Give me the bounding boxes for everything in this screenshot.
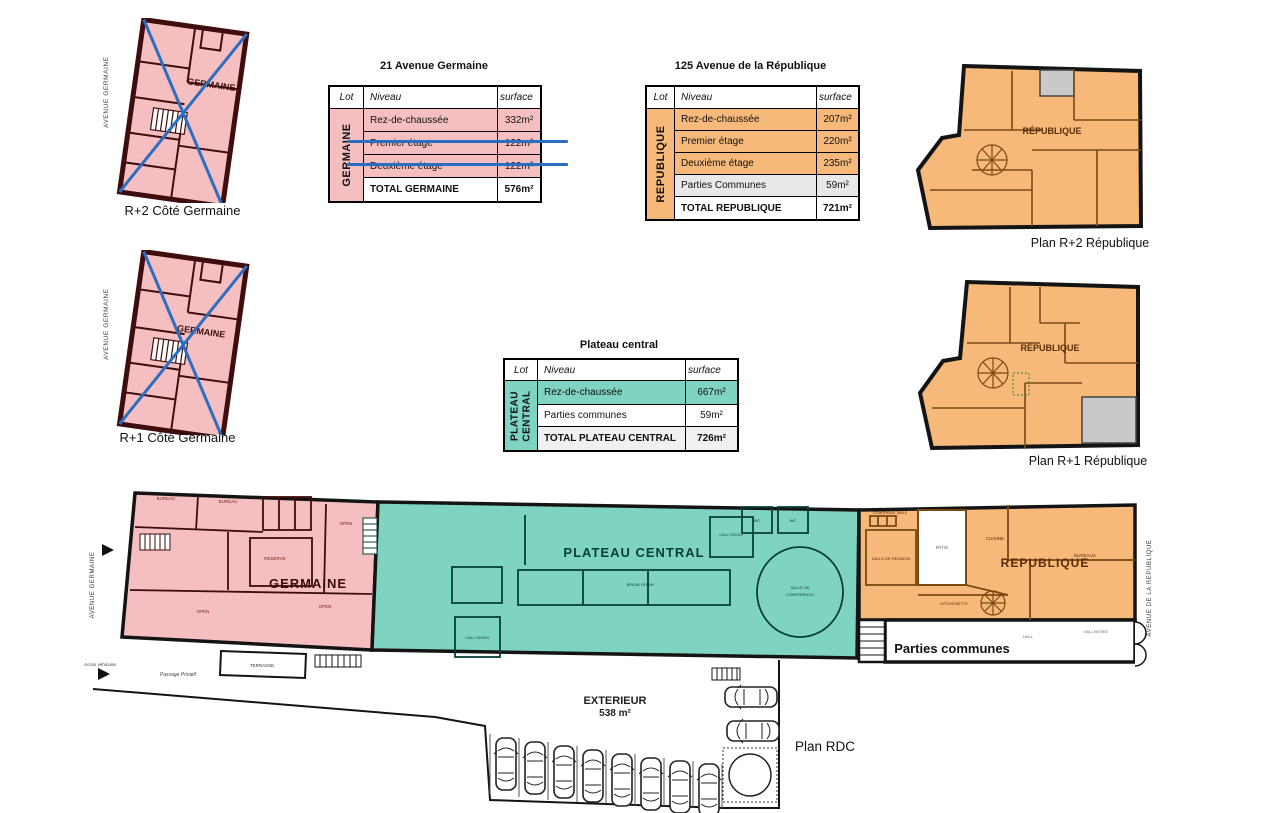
plan-r2-republique-label: RÉPUBLIQUE [1022,126,1081,136]
row-niveau: Rez-de-chaussée [364,109,498,132]
svg-text:OPEN: OPEN [319,604,332,609]
row-surface: 220m² [817,131,858,153]
row-surface: 122m² [498,155,540,178]
svg-text:SALLE DE: SALLE DE [790,585,809,590]
svg-text:CONFERENCE: CONFERENCE [786,592,814,597]
svg-text:Accès véhicules: Accès véhicules [84,662,117,667]
spiral-stair-icon [981,591,1005,615]
car-icon [639,758,663,810]
col-header-lot: Lot [505,360,538,381]
row-surface: 332m² [498,109,540,132]
rdc-germaine-label: GERMAINE [269,576,347,591]
col-header-surface: surface [817,87,858,109]
total-surface: 726m² [686,427,737,450]
svg-text:OPEN: OPEN [197,609,210,614]
lot-cell-republique: REPUBLIQUE [647,109,675,219]
plan-r2-republique: RÉPUBLIQUE [912,50,1172,236]
ladder-icon [363,518,377,554]
svg-text:TERRASSE: TERRASSE [250,663,274,668]
exterieur-label: EXTERIEUR [584,695,647,707]
rdc-republique-label: REPUBLIQUE [1001,556,1090,570]
street-label-avenue-germaine: AVENUE GERMAINE [103,288,110,360]
spiral-stair-icon [978,358,1008,388]
gray-room [1082,397,1136,443]
col-header-niveau: Niveau [538,360,686,381]
stairs-icon [315,655,740,680]
svg-text:RESERVE: RESERVE [264,556,285,561]
total-label: TOTAL PLATEAU CENTRAL [538,427,686,450]
table-title-germaine: 21 Avenue Germaine [328,60,540,72]
svg-text:BUREAU: BUREAU [157,496,176,501]
svg-text:OPEN: OPEN [340,521,353,526]
entry-door-arcs [1135,622,1146,666]
street-label-avenue-germaine: AVENUE GERMAINE [90,552,96,619]
plan-rdc: GERMAINE PLATEAU CENTRAL REPUBLIQUE Part… [78,470,1168,813]
plan-r2-republique-outline [918,66,1141,228]
row-surface: 59m² [686,405,737,427]
row-niveau: Premier étage [675,131,817,153]
caption-r1-germaine: R+1 Côté Germaine [95,430,260,445]
table-republique: Lot Niveau surface REPUBLIQUE Rez-de-cha… [645,85,860,221]
total-label: TOTAL REPUBLIQUE [675,197,817,219]
rdc-parties-communes-label: Parties communes [894,641,1010,656]
exterieur-surface: 538 m² [599,708,631,719]
plan-r1-germaine: GERMAINE [95,250,270,435]
row-niveau: Parties communes [538,405,686,427]
spiral-stair-icon [977,145,1007,175]
col-header-niveau: Niveau [675,87,817,109]
strikethrough-line [347,163,568,166]
total-surface: 576m² [498,178,540,201]
row-niveau: Deuxième étage [675,153,817,175]
floor-plan-sheet: GERMAINE AVENUE GERMAINE R+2 Côté Germai… [0,0,1280,813]
street-label-avenue-republique: AVENUE DE LA REPUBLIQUE [1147,539,1153,636]
rdc-plateau-label: PLATEAU CENTRAL [563,545,704,560]
caption-r1-republique: Plan R+1 République [983,454,1193,468]
total-surface: 721m² [817,197,858,219]
svg-text:BUREAUX: BUREAUX [1074,553,1096,558]
tree-planter [723,748,777,802]
car-icon [725,685,777,709]
svg-text:PATIO: PATIO [936,545,949,550]
svg-text:WC: WC [754,518,761,523]
plan-r1-republique-label: RÉPUBLIQUE [1020,343,1079,353]
svg-text:CUISINE: CUISINE [986,536,1004,541]
row-surface: 207m² [817,109,858,131]
row-niveau: Rez-de-chaussée [675,109,817,131]
row-surface: 235m² [817,153,858,175]
gray-room [1040,70,1074,96]
stairs-icon [140,534,170,550]
table-title-republique: 125 Avenue de la République [645,60,856,72]
strikethrough-line [347,140,568,143]
plan-r2-germaine: GERMAINE [95,18,270,203]
car-icon [494,738,518,790]
entrance-arrow-icon [98,668,110,680]
caption-r2-germaine: R+2 Côté Germaine [100,203,265,218]
col-header-surface: surface [686,360,737,381]
row-niveau: Premier étage [364,132,498,155]
entrance-arrow-icon [102,544,114,556]
svg-text:BUREAU: BUREAU [219,499,238,504]
lot-cell-plateau: PLATEAU CENTRAL [505,381,538,450]
col-header-lot: Lot [647,87,675,109]
table-plateau: Lot Niveau surface PLATEAU CENTRAL Rez-d… [503,358,739,452]
svg-text:HALL ENTREE: HALL ENTREE [1084,630,1108,634]
row-niveau: Deuxième étage [364,155,498,178]
car-icon [727,719,779,743]
col-header-niveau: Niveau [364,87,498,109]
total-label: TOTAL GERMAINE [364,178,498,201]
car-icon [552,746,576,798]
car-icon [581,750,605,802]
row-niveau: Rez-de-chaussée [538,381,686,405]
row-niveau: Parties Communes [675,175,817,197]
plan-r1-republique: RÉPUBLIQUE [915,273,1165,455]
car-icon [668,761,692,813]
stairwell-icon [859,620,885,662]
svg-text:Passage Privatif: Passage Privatif [160,672,197,678]
svg-text:CALL ROOM: CALL ROOM [465,635,488,640]
row-surface: 59m² [817,175,858,197]
table-title-plateau: Plateau central [503,339,735,351]
svg-text:COWORKING TABLE: COWORKING TABLE [873,511,908,515]
row-surface: 122m² [498,132,540,155]
street-label-avenue-germaine: AVENUE GERMAINE [103,56,110,128]
svg-text:HALL: HALL [1023,634,1034,639]
lot-cell-germaine: GERMAINE [330,109,364,201]
rdc-caption: Plan RDC [795,739,855,754]
table-germaine: Lot Niveau surface GERMAINE Rez-de-chaus… [328,85,542,203]
caption-r2-republique: Plan R+2 République [985,236,1195,250]
car-icon [697,764,721,813]
col-header-lot: Lot [330,87,364,109]
svg-text:KITCHENETTE: KITCHENETTE [940,601,968,606]
row-surface: 667m² [686,381,737,405]
svg-text:WC: WC [790,518,797,523]
svg-text:BREAK ROOM: BREAK ROOM [626,582,653,587]
svg-text:CALL ROOM: CALL ROOM [719,532,742,537]
col-header-surface: surface [498,87,540,109]
car-icon [523,742,547,794]
svg-text:SALLE DE REUNION: SALLE DE REUNION [872,556,911,561]
car-icon [610,754,634,806]
